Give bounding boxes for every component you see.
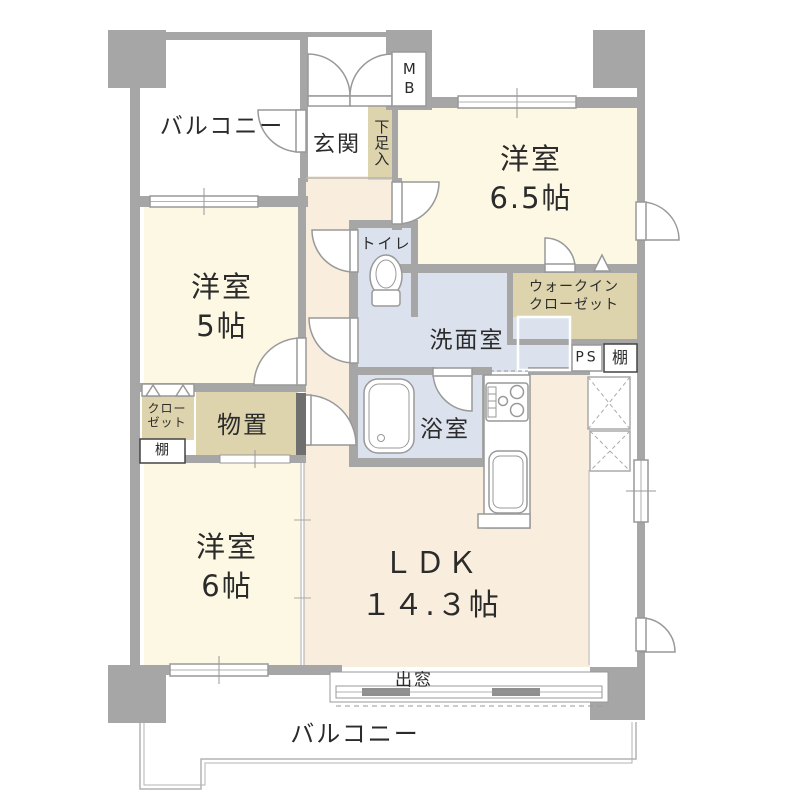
refrigerator-space xyxy=(588,377,630,471)
bay-window xyxy=(330,672,608,706)
walk-in-closet-label: ウォークイン クローゼット xyxy=(529,278,619,314)
closet-label: クロー ゼット xyxy=(147,402,186,431)
ldk-label: ＬＤＫ １４.３帖 xyxy=(361,543,501,627)
bathroom-label: 浴室 xyxy=(420,416,470,445)
bedroom-6-label: 洋室 6帖 xyxy=(196,528,258,606)
balcony-top-label: バルコニー xyxy=(160,113,285,142)
meter-box-label: MB xyxy=(400,60,419,98)
storage-label: 物置 xyxy=(217,410,269,440)
bedroom-65-label: 洋室 6.5帖 xyxy=(489,140,572,218)
bay-window-label: 出窓 xyxy=(395,670,433,691)
shoe-cabinet-label: 下足入 xyxy=(372,119,391,167)
washroom-label: 洗面室 xyxy=(430,327,505,356)
storage-slider-panel xyxy=(296,393,306,455)
balcony-bottom-label: バルコニー xyxy=(290,719,420,749)
bathtub-icon xyxy=(364,379,414,453)
shelf-left-label: 棚 xyxy=(155,442,169,460)
stove-icon xyxy=(486,383,528,421)
floor-plan: バルコニー MB 玄関 下足入 洋室 6.5帖 トイレ 洋室 5帖 ウォークイン… xyxy=(0,0,800,800)
pipe-space-label: PS xyxy=(575,349,598,367)
sink-icon xyxy=(489,451,527,513)
entrance-label: 玄関 xyxy=(313,131,361,159)
toilet-label: トイレ xyxy=(360,235,411,254)
shelf-right-label: 棚 xyxy=(612,348,628,368)
toilet-icon xyxy=(370,255,402,306)
bedroom-5-label: 洋室 5帖 xyxy=(191,268,253,346)
